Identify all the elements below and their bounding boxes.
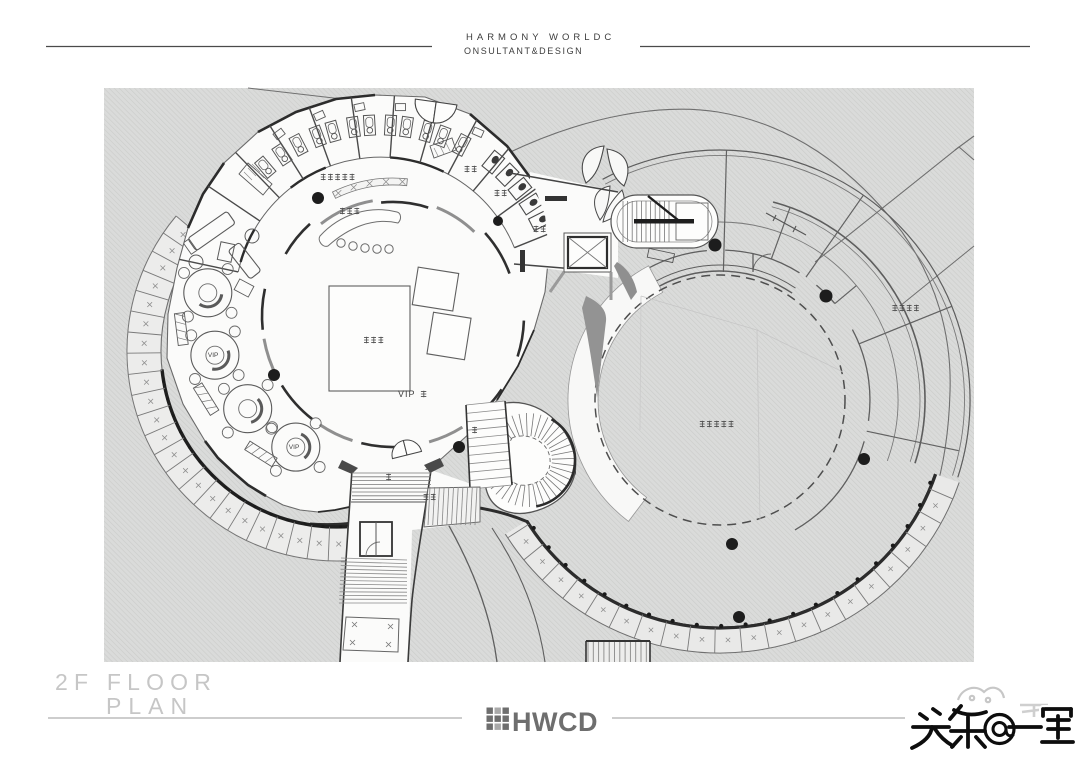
svg-text:ONSULTANT&DESIGN: ONSULTANT&DESIGN xyxy=(464,46,583,56)
svg-text:HWCD: HWCD xyxy=(512,707,598,737)
svg-text:VIP: VIP xyxy=(398,389,416,399)
svg-text:2F FLOOR: 2F FLOOR xyxy=(55,669,217,695)
svg-text:VIP: VIP xyxy=(208,352,218,359)
svg-text:HARMONY WORLDC: HARMONY WORLDC xyxy=(466,32,615,43)
svg-text:PLAN: PLAN xyxy=(106,693,194,719)
svg-text:VIP: VIP xyxy=(289,444,299,451)
